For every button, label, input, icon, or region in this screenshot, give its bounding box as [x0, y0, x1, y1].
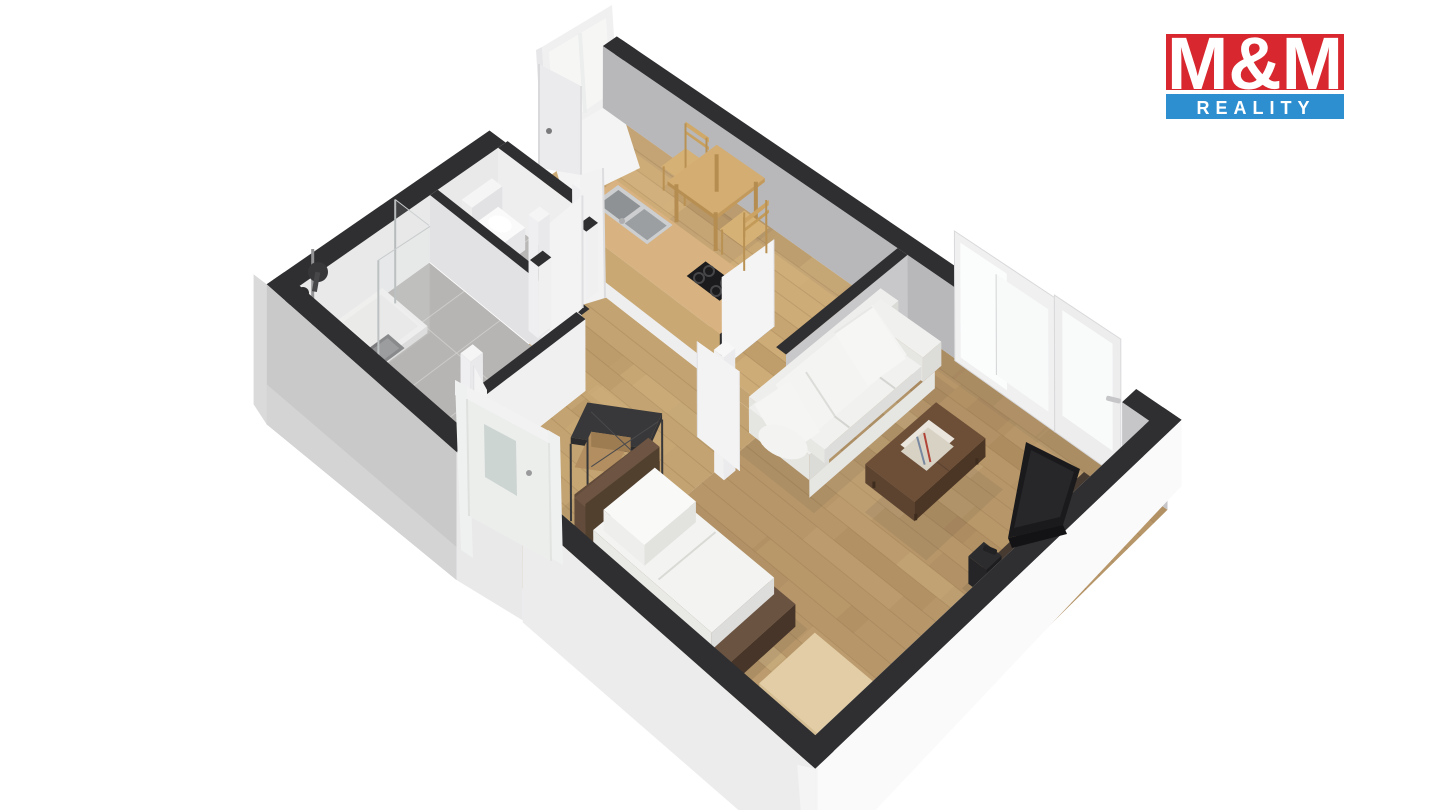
- svg-text:REALITY: REALITY: [1196, 98, 1315, 118]
- svg-text:M&M: M&M: [1167, 22, 1343, 105]
